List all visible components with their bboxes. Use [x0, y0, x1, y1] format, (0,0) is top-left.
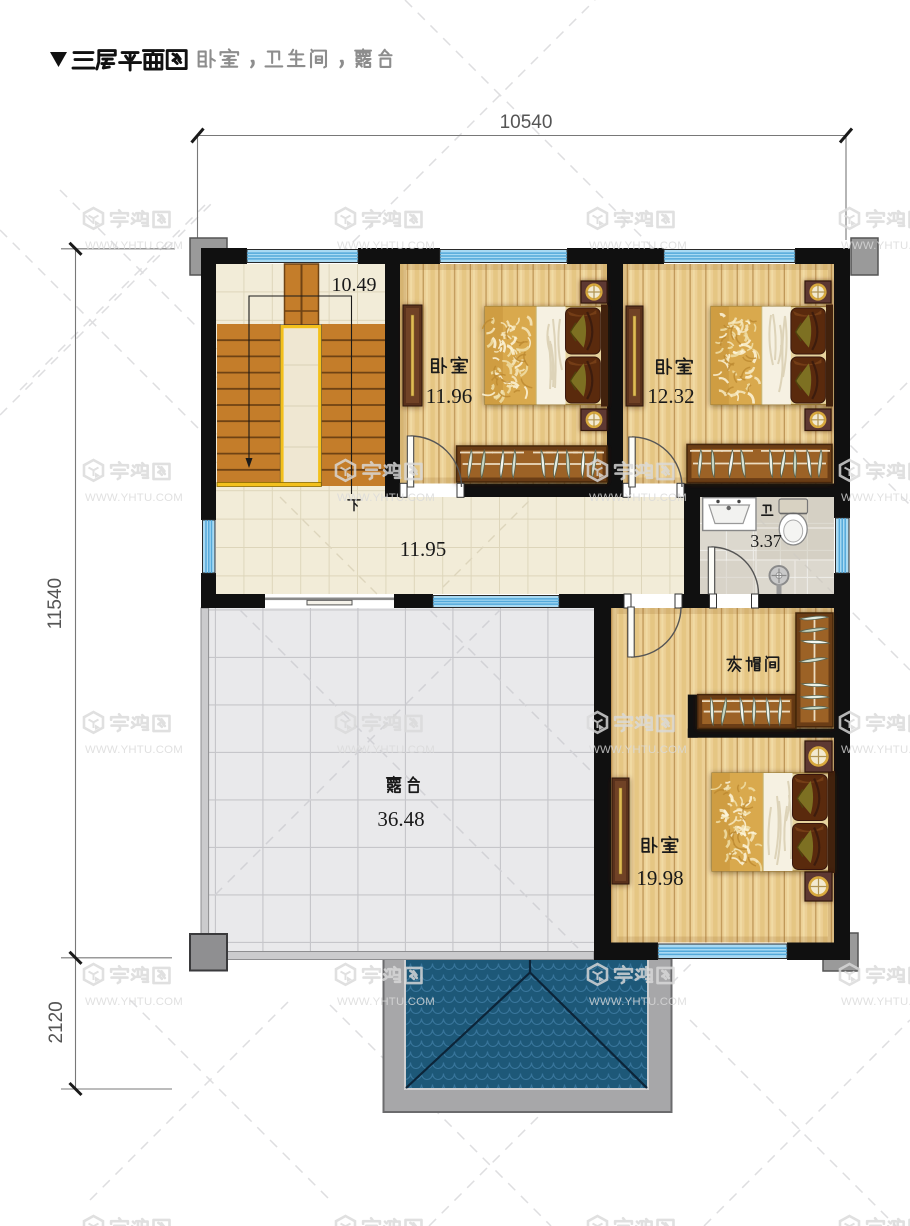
svg-text:3.37: 3.37 — [750, 531, 782, 551]
svg-text:WWW.YHTU.COM: WWW.YHTU.COM — [85, 240, 183, 252]
svg-text:36.48: 36.48 — [377, 807, 424, 831]
svg-text:WWW.YHTU.COM: WWW.YHTU.COM — [841, 996, 910, 1008]
svg-text:WWW.YHTU.COM: WWW.YHTU.COM — [85, 492, 183, 504]
svg-text:WWW.YHTU.COM: WWW.YHTU.COM — [85, 996, 183, 1008]
svg-text:WWW.YHTU.COM: WWW.YHTU.COM — [841, 240, 910, 252]
svg-text:11540: 11540 — [45, 578, 66, 629]
svg-text:10.49: 10.49 — [332, 274, 377, 296]
svg-text:WWW.YHTU.COM: WWW.YHTU.COM — [589, 240, 687, 252]
svg-text:WWW.YHTU.COM: WWW.YHTU.COM — [589, 492, 687, 504]
svg-text:WWW.YHTU.COM: WWW.YHTU.COM — [337, 996, 435, 1008]
svg-text:WWW.YHTU.COM: WWW.YHTU.COM — [589, 744, 687, 756]
svg-text:2120: 2120 — [46, 1001, 67, 1043]
svg-text:10540: 10540 — [500, 112, 553, 133]
svg-text:11.95: 11.95 — [400, 537, 446, 561]
svg-text:WWW.YHTU.COM: WWW.YHTU.COM — [85, 744, 183, 756]
svg-text:11.96: 11.96 — [426, 384, 472, 408]
svg-text:12.32: 12.32 — [647, 384, 694, 408]
svg-text:WWW.YHTU.COM: WWW.YHTU.COM — [841, 492, 910, 504]
svg-text:WWW.YHTU.COM: WWW.YHTU.COM — [337, 744, 435, 756]
svg-text:WWW.YHTU.COM: WWW.YHTU.COM — [841, 744, 910, 756]
svg-text:19.98: 19.98 — [636, 866, 683, 890]
svg-text:WWW.YHTU.COM: WWW.YHTU.COM — [337, 492, 435, 504]
svg-text:WWW.YHTU.COM: WWW.YHTU.COM — [589, 996, 687, 1008]
svg-text:WWW.YHTU.COM: WWW.YHTU.COM — [337, 240, 435, 252]
